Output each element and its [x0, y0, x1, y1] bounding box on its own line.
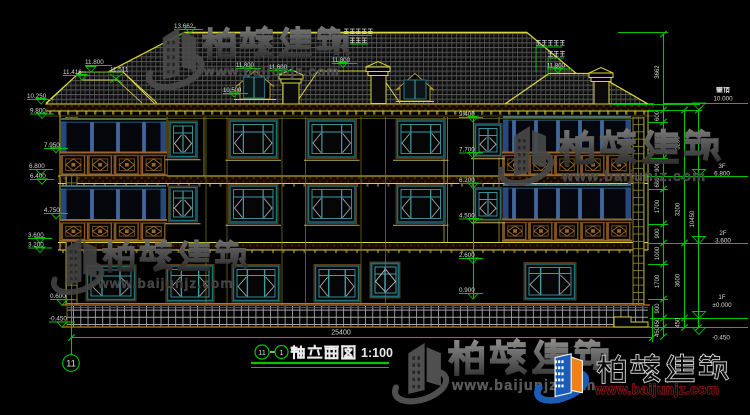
svg-text:11.511: 11.511 [110, 67, 129, 74]
svg-text:25400: 25400 [331, 330, 351, 337]
svg-text:900: 900 [655, 228, 661, 239]
svg-text:-0.450: -0.450 [712, 335, 730, 342]
svg-text:±0.000: ±0.000 [712, 302, 732, 309]
svg-text:11.800: 11.800 [85, 59, 104, 66]
svg-text:www.baijunjz.com: www.baijunjz.com [203, 64, 340, 79]
svg-text:900: 900 [655, 303, 661, 314]
svg-text:1: 1 [279, 348, 283, 357]
svg-text:11: 11 [66, 359, 76, 370]
svg-text:0.900: 0.900 [459, 287, 475, 294]
svg-text:11: 11 [258, 348, 266, 357]
svg-text:2F: 2F [719, 230, 726, 237]
svg-text:450: 450 [676, 317, 682, 328]
svg-text:10.000: 10.000 [713, 96, 733, 103]
svg-text:1:100: 1:100 [361, 346, 393, 360]
svg-text:1000: 1000 [655, 246, 661, 260]
svg-text:3600: 3600 [676, 273, 682, 287]
svg-text:www.baijunjz.com: www.baijunjz.com [97, 276, 234, 291]
svg-text:3662: 3662 [655, 65, 661, 79]
svg-text:10450: 10450 [690, 210, 696, 227]
svg-text:1700: 1700 [655, 274, 661, 288]
svg-text:3200: 3200 [676, 202, 682, 216]
svg-text:www.baijunjz.com: www.baijunjz.com [561, 169, 706, 185]
svg-text:www.baijunjz.com: www.baijunjz.com [594, 382, 720, 397]
svg-text:3F: 3F [718, 163, 725, 170]
svg-text:600: 600 [655, 110, 661, 121]
svg-text:1F: 1F [718, 294, 725, 301]
svg-text:6.800: 6.800 [29, 163, 45, 170]
svg-text:1700: 1700 [655, 199, 661, 213]
